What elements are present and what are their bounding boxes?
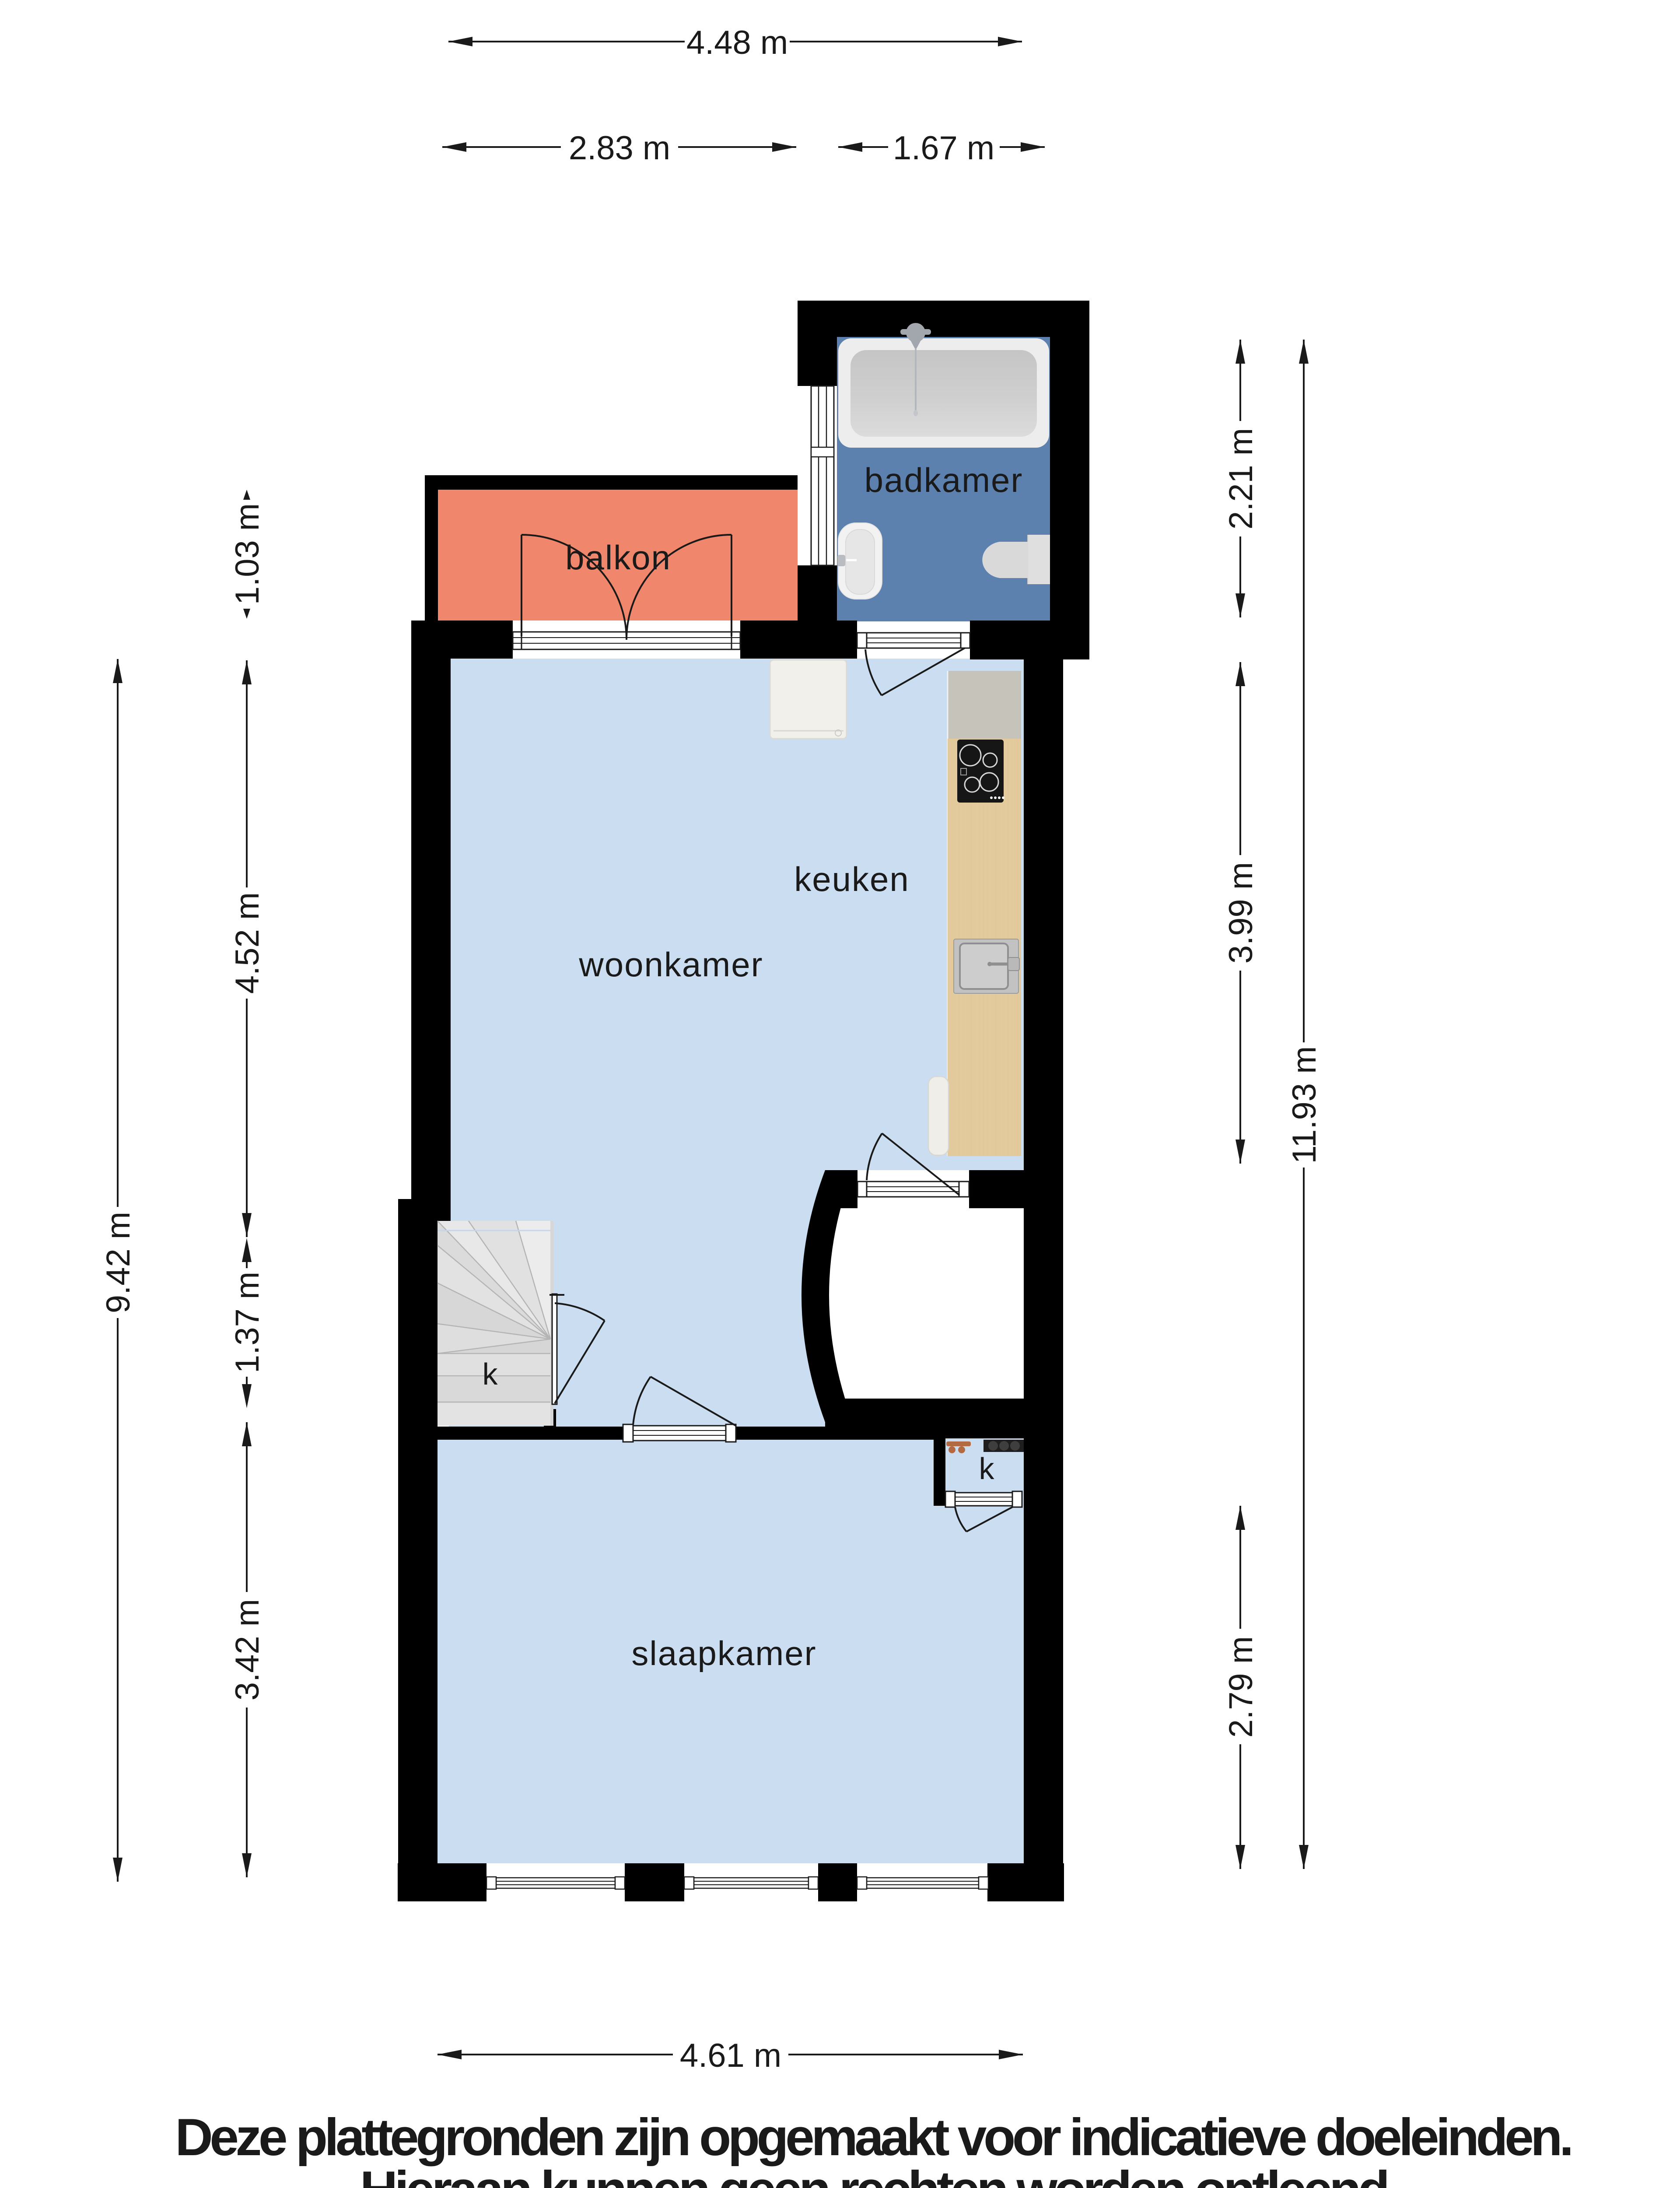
svg-text:4.61 m: 4.61 m [680, 2037, 781, 2074]
svg-text:k: k [483, 1357, 498, 1391]
svg-text:11.93 m: 11.93 m [1286, 1046, 1323, 1164]
svg-text:2.83 m: 2.83 m [569, 130, 670, 167]
svg-text:Hieraan kunnen geen rechten wo: Hieraan kunnen geen rechten worden ontle… [360, 2160, 1398, 2188]
svg-text:slaapkamer: slaapkamer [631, 1634, 816, 1673]
svg-text:9.42 m: 9.42 m [100, 1212, 137, 1313]
svg-text:4.52 m: 4.52 m [229, 892, 266, 994]
svg-text:badkamer: badkamer [864, 461, 1023, 499]
svg-text:2.21 m: 2.21 m [1222, 428, 1260, 529]
svg-text:4.48 m: 4.48 m [686, 24, 788, 61]
svg-text:keuken: keuken [794, 860, 910, 898]
svg-text:Deze plattegronden zijn opgema: Deze plattegronden zijn opgemaakt voor i… [175, 2108, 1571, 2167]
svg-text:2.79 m: 2.79 m [1222, 1636, 1260, 1738]
svg-text:1.03 m: 1.03 m [229, 503, 266, 605]
svg-text:woonkamer: woonkamer [578, 945, 763, 984]
svg-text:balkon: balkon [565, 538, 671, 577]
svg-text:k: k [979, 1452, 995, 1486]
svg-text:3.42 m: 3.42 m [229, 1599, 266, 1701]
svg-text:1.37 m: 1.37 m [229, 1272, 266, 1373]
svg-text:1.67 m: 1.67 m [893, 130, 994, 167]
svg-text:3.99 m: 3.99 m [1222, 862, 1260, 964]
